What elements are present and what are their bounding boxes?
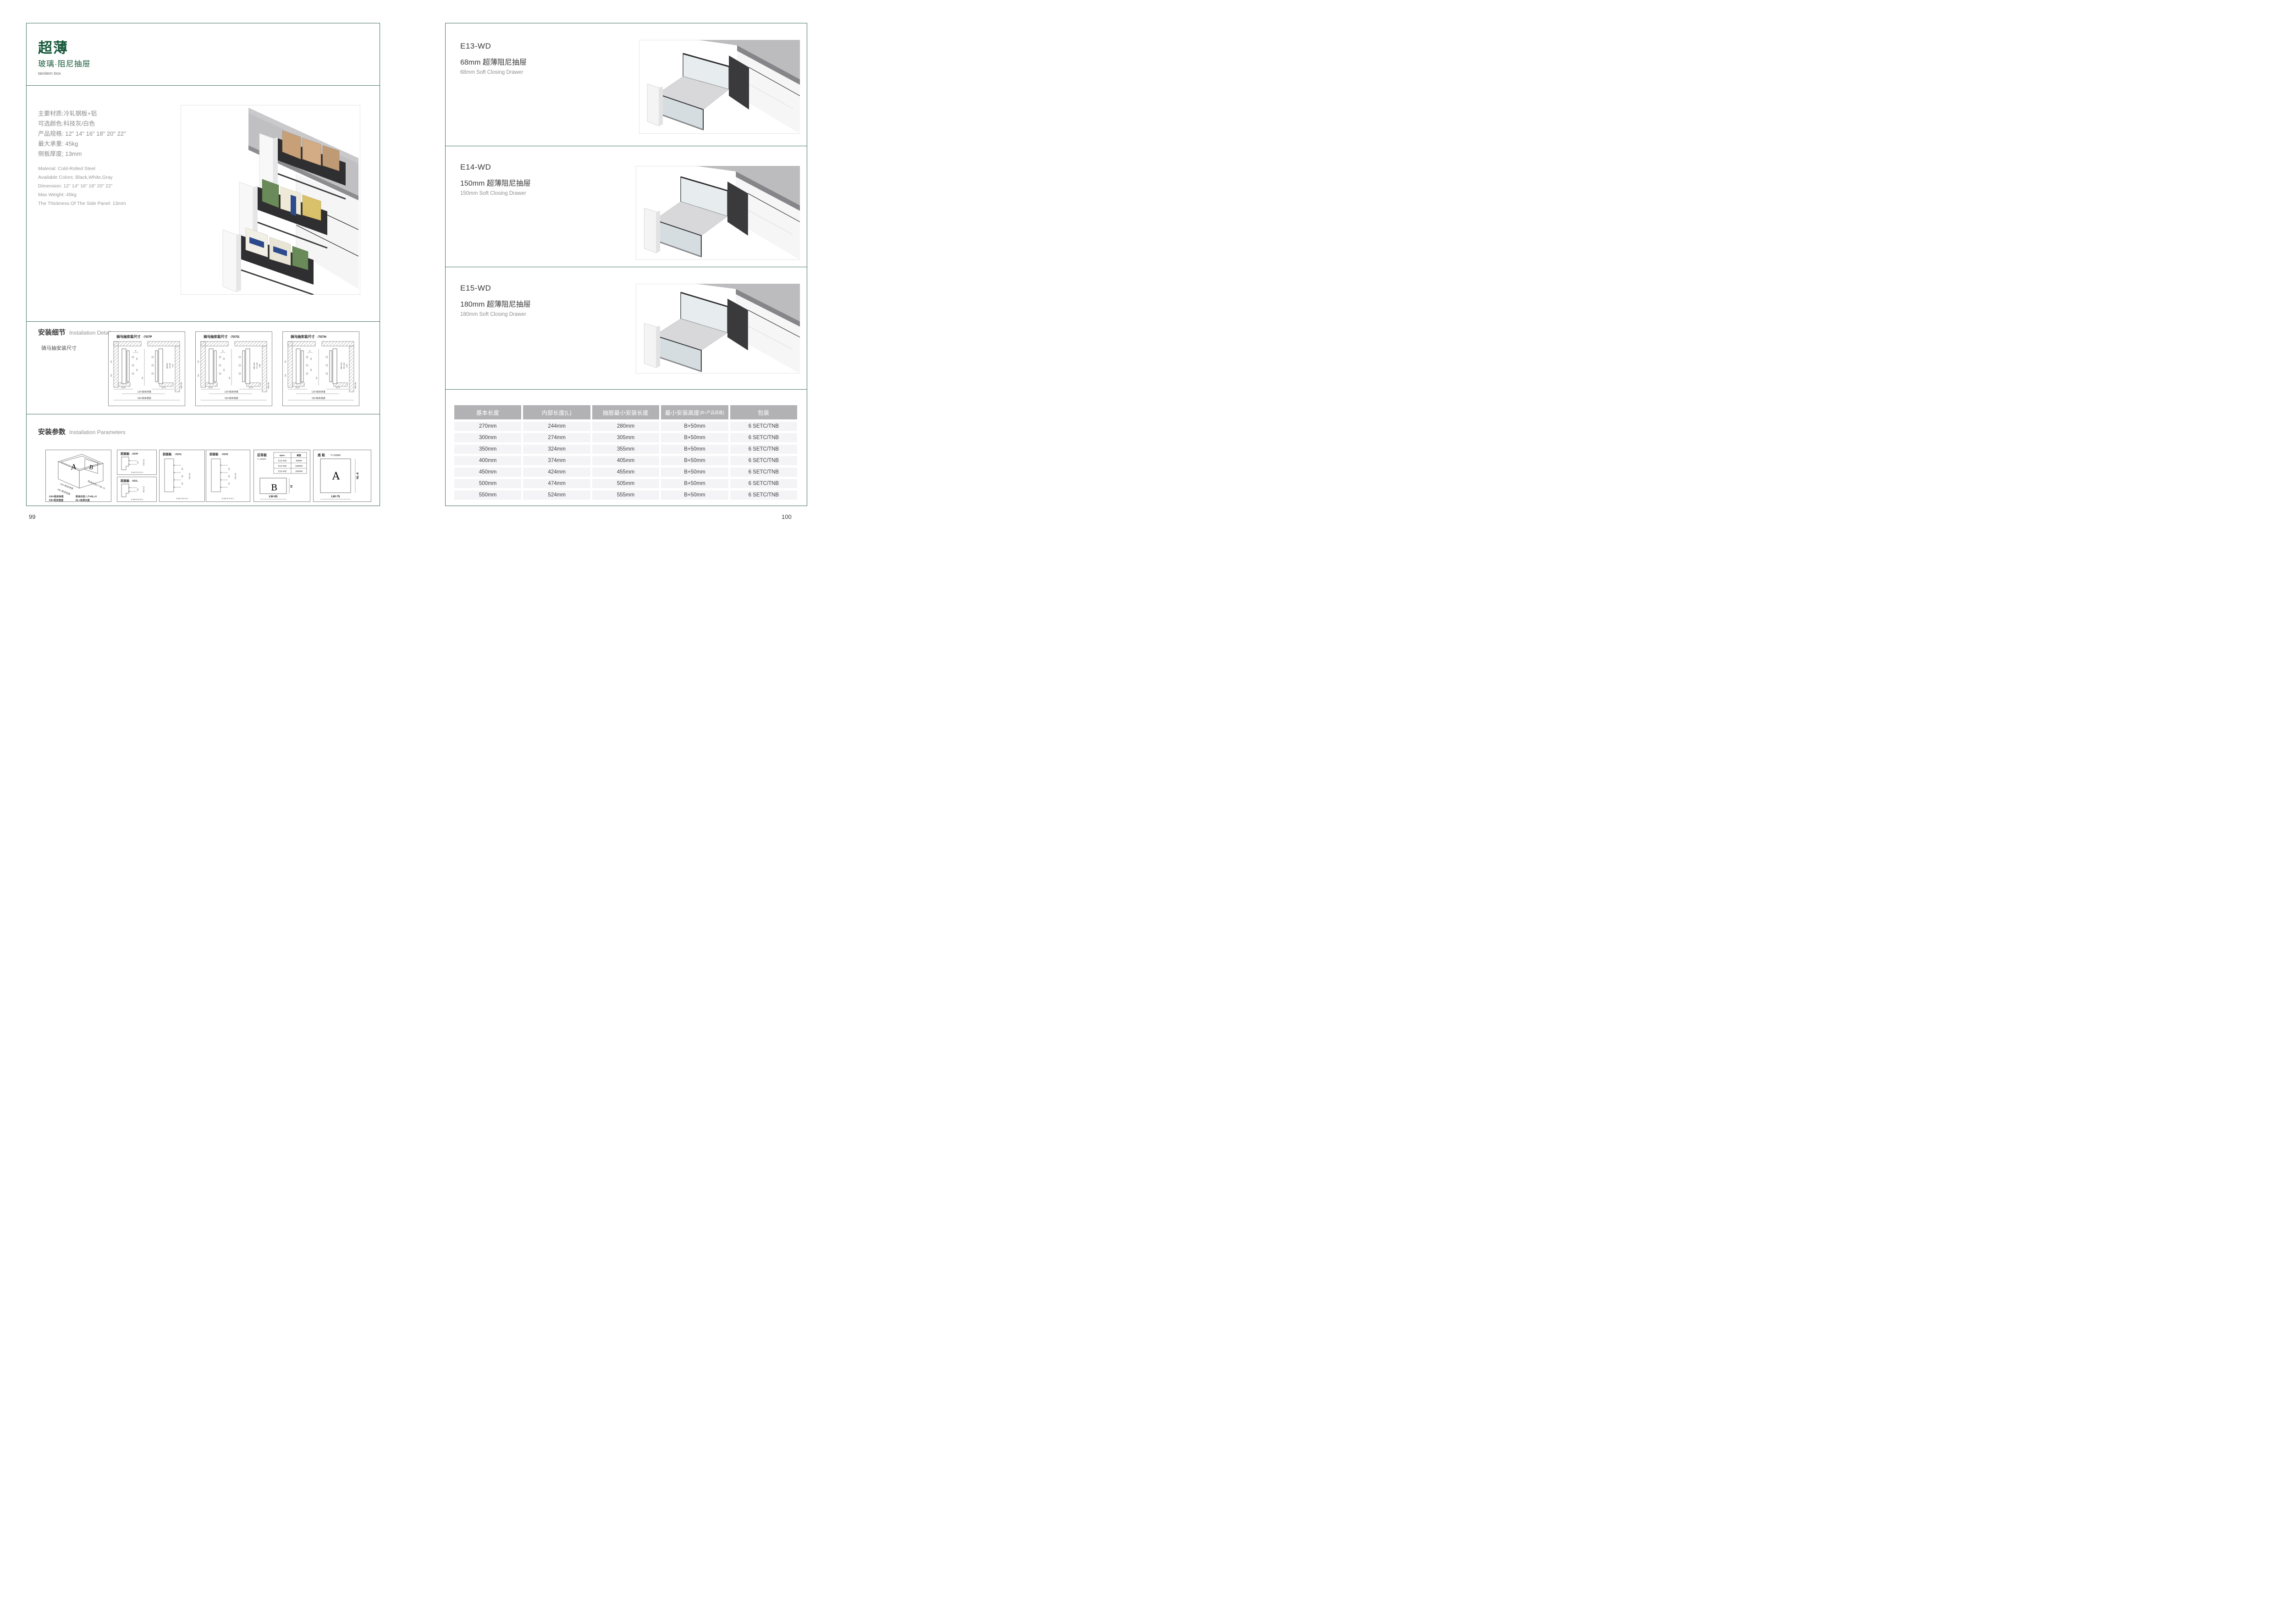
- svg-text:A: A: [332, 471, 340, 482]
- svg-text:32: 32: [137, 461, 139, 464]
- cell-packing: 6 SETC/TNB: [730, 468, 797, 477]
- product-photo-e14: [636, 166, 800, 260]
- table-header-cell: 包装: [730, 405, 797, 419]
- product-code: E15-WD: [460, 284, 531, 293]
- page-title: 超薄: [38, 36, 68, 57]
- bottom-panel-diagram: 底 板 T=16MM A NL-6 LW-75: [313, 450, 371, 502]
- cell-inner-length: 244mm: [523, 422, 590, 431]
- svg-text:16: 16: [228, 377, 231, 380]
- spec-line-cn: 产品规格: 12" 14" 16" 18" 20" 22": [38, 129, 126, 139]
- cell-packing: 6 SETC/TNB: [730, 422, 797, 431]
- table-row: 450mm 424mm 455mm B+50mm 6 SETC/TNB: [454, 468, 797, 477]
- svg-text:骑马抽安装尺寸-707G: 骑马抽安装尺寸-707G: [204, 334, 240, 339]
- svg-text:Min192: Min192: [340, 362, 342, 369]
- svg-text:LW=柜体净宽: LW=柜体净宽: [225, 391, 238, 394]
- svg-text:2-ø2+0.2-0.1: 2-ø2+0.2-0.1: [131, 471, 143, 473]
- spec-line-en: Dimension: 12" 14" 16" 18" 20" 22": [38, 182, 126, 191]
- install-details-subheading: 骑马抽安装尺寸: [41, 344, 77, 352]
- product-photo-main: [181, 105, 360, 295]
- svg-text:9: 9: [222, 350, 224, 352]
- svg-text:225: 225: [346, 364, 348, 368]
- install-detail-panel: 骑马抽安装尺寸-707P: [108, 331, 185, 406]
- svg-text:20: 20: [223, 358, 225, 360]
- cell-basic-length: 300mm: [454, 433, 521, 442]
- cell-min-install-height: B+50mm: [661, 468, 728, 477]
- table-row: 400mm 374mm 405mm B+50mm 6 SETC/TNB: [454, 456, 797, 465]
- svg-text:32: 32: [197, 360, 199, 363]
- install-details-heading: 安装细节Installation Details: [38, 327, 114, 337]
- cell-min-install-length: 555mm: [592, 490, 659, 500]
- svg-text:201.50: 201.50: [343, 363, 345, 369]
- cell-inner-length: 374mm: [523, 456, 590, 465]
- table-header-cell: 抽屉最小安装长度: [592, 405, 659, 419]
- table-header-cell: 基本长度: [454, 405, 521, 419]
- cell-min-install-height: B+50mm: [661, 490, 728, 500]
- table-row: 300mm 274mm 305mm B+50mm 6 SETC/TNB: [454, 433, 797, 442]
- svg-text:32: 32: [181, 482, 183, 485]
- table-header-cell: 最小安装高度(B=产品高度): [661, 405, 728, 419]
- spec-line-en: Max Weight: 45kg: [38, 191, 126, 199]
- svg-text:64: 64: [197, 374, 199, 377]
- cell-inner-length: 274mm: [523, 433, 590, 442]
- svg-text:37.5: 37.5: [162, 386, 166, 389]
- svg-text:LW=柜体净宽: LW=柜体净宽: [312, 391, 325, 394]
- page-subtitle: 玻璃·阻尼抽屉: [38, 57, 91, 69]
- section-divider-2: [446, 267, 807, 267]
- section-divider-3: [446, 389, 807, 390]
- svg-text:32: 32: [223, 369, 225, 371]
- product-name-cn: 68mm 超薄阻尼抽屉: [460, 56, 527, 67]
- svg-text:20: 20: [136, 358, 138, 360]
- cell-inner-length: 524mm: [523, 490, 590, 500]
- svg-text:54: 54: [110, 374, 112, 377]
- svg-text:195: 195: [259, 364, 261, 368]
- cell-packing: 6 SETC/TNB: [730, 490, 797, 500]
- spec-list-cn: 主要材质:冷轧钢板+铝可选颜色:科技灰/白色产品规格: 12" 14" 16" …: [38, 109, 126, 159]
- spec-line-cn: 侧板厚度; 13mm: [38, 149, 126, 159]
- front-panel-707l: 前面板-707L 32 min 54 2-ø2+0.2-0.1: [117, 477, 157, 502]
- section-divider-1: [446, 146, 807, 146]
- page-number-left: 99: [29, 513, 35, 520]
- section-e15: E15-WD 180mm 超薄阻尼抽屉 180mm Soft Closing D…: [460, 284, 531, 317]
- spec-list-en: Material: Cold-Rolled SteelAvailable Col…: [38, 165, 126, 208]
- install-detail-panel: 骑马抽安装尺寸-707G: [195, 331, 272, 406]
- svg-text:113: 113: [171, 364, 174, 368]
- svg-text:min 54: min 54: [188, 473, 191, 479]
- svg-text:Min82: Min82: [166, 363, 168, 369]
- svg-text:KB=柜体宽度: KB=柜体宽度: [138, 397, 151, 400]
- product-photo-e13: [639, 40, 800, 134]
- svg-text:骑马抽安装尺寸-707P: 骑马抽安装尺寸-707P: [116, 334, 152, 339]
- cell-packing: 6 SETC/TNB: [730, 479, 797, 488]
- table-header-cell: 内部长度(L): [523, 405, 590, 419]
- page-tagline: tandem box: [38, 71, 61, 76]
- svg-text:180MM: 180MM: [295, 470, 303, 473]
- svg-text:4-ø2+0.2-0.1: 4-ø2+0.2-0.1: [176, 497, 188, 500]
- svg-text:32: 32: [110, 360, 112, 363]
- product-code: E13-WD: [460, 42, 527, 51]
- table-row: 550mm 524mm 555mm B+50mm 6 SETC/TNB: [454, 490, 797, 500]
- front-panel-707g: 前面板-707G 32 64 32 min 54 4-ø2+0.2-0.1: [159, 450, 205, 502]
- svg-text:32: 32: [137, 488, 139, 491]
- svg-text:32: 32: [136, 369, 138, 371]
- cell-min-install-height: B+50mm: [661, 422, 728, 431]
- cell-packing: 6 SETC/TNB: [730, 456, 797, 465]
- svg-text:64: 64: [181, 475, 183, 478]
- table-header-row: 基本长度 内部长度(L) 抽屉最小安装长度 最小安装高度(B=产品高度) 包装: [454, 405, 797, 419]
- cell-min-install-length: 305mm: [592, 433, 659, 442]
- svg-text:E15-WD: E15-WD: [278, 470, 287, 473]
- svg-text:Min 36: Min 36: [354, 382, 357, 389]
- svg-text:37.5: 37.5: [336, 386, 340, 389]
- svg-text:150MM: 150MM: [295, 465, 303, 468]
- cell-min-install-length: 455mm: [592, 468, 659, 477]
- svg-text:NL-6: NL-6: [356, 472, 359, 479]
- cell-basic-length: 400mm: [454, 456, 521, 465]
- cell-basic-length: 270mm: [454, 422, 521, 431]
- svg-text:Spec.: Spec.: [280, 454, 286, 457]
- section-e13: E13-WD 68mm 超薄阻尼抽屉 68mm Soft Closing Dra…: [460, 42, 527, 75]
- install-detail-panel: 骑马抽安装尺寸-707H: [282, 331, 359, 406]
- catalog-page-right: E13-WD 68mm 超薄阻尼抽屉 68mm Soft Closing Dra…: [445, 23, 807, 506]
- product-name-en: 180mm Soft Closing Drawer: [460, 312, 531, 317]
- svg-text:骑马抽安装尺寸-707H: 骑马抽安装尺寸-707H: [291, 334, 326, 339]
- cell-min-install-height: B+50mm: [661, 479, 728, 488]
- svg-text:KB=柜体宽度: KB=柜体宽度: [312, 397, 325, 400]
- product-photo-e15: [636, 284, 800, 374]
- cell-min-install-length: 505mm: [592, 479, 659, 488]
- product-name-cn: 150mm 超薄阻尼抽屉: [460, 177, 531, 188]
- iso-cabinet-panel: A B 柜体内空LT=NL+3 LW=柜体净宽 KB=柜体宽度 LW=柜体净宽 …: [45, 450, 111, 502]
- svg-text:NL=标准长度: NL=标准长度: [76, 498, 90, 502]
- spec-line-cn: 可选颜色:科技灰/白色: [38, 119, 126, 129]
- svg-text:min 54: min 54: [143, 459, 145, 466]
- svg-text:2-ø2+0.2-0.1: 2-ø2+0.2-0.1: [131, 498, 143, 501]
- svg-text:9: 9: [309, 350, 311, 352]
- install-detail-panels: 骑马抽安装尺寸-707P: [108, 331, 359, 406]
- svg-text:64: 64: [228, 475, 230, 478]
- svg-text:Min 36: Min 36: [267, 382, 270, 389]
- svg-text:4-ø2+0.2-0.1: 4-ø2+0.2-0.1: [222, 497, 234, 500]
- svg-text:T=16MM: T=16MM: [331, 454, 341, 457]
- svg-text:LW-85: LW-85: [269, 495, 277, 498]
- svg-text:68MM: 68MM: [296, 460, 302, 462]
- table-row: 270mm 244mm 280mm B+50mm 6 SETC/TNB: [454, 422, 797, 431]
- svg-text:E13-WD: E13-WD: [278, 460, 287, 462]
- cell-min-install-length: 405mm: [592, 456, 659, 465]
- svg-text:min 54: min 54: [234, 473, 237, 479]
- cell-min-install-height: B+50mm: [661, 433, 728, 442]
- dimensions-table: 基本长度 内部长度(L) 抽屉最小安装长度 最小安装高度(B=产品高度) 包装: [454, 405, 797, 500]
- cell-inner-length: 474mm: [523, 479, 590, 488]
- svg-text:T=16MM: T=16MM: [257, 458, 266, 461]
- svg-text:KB=柜体宽度: KB=柜体宽度: [49, 498, 64, 502]
- spec-line-cn: 主要材质:冷轧钢板+铝: [38, 109, 126, 119]
- svg-text:柜体内空: LT=NL+3: 柜体内空: LT=NL+3: [76, 495, 97, 498]
- cell-packing: 6 SETC/TNB: [730, 445, 797, 454]
- catalog-page-left: 超薄 玻璃·阻尼抽屉 tandem box 主要材质:冷轧钢板+铝可选颜色:科技…: [26, 23, 380, 506]
- svg-text:Min162: Min162: [253, 362, 255, 369]
- section-divider-details: [27, 321, 380, 322]
- svg-text:16.5: 16.5: [121, 386, 126, 389]
- install-params-heading: 安装参数Installation Parameters: [38, 427, 126, 436]
- spec-line-en: The Thickness Of The Side Panel: 13mm: [38, 199, 126, 208]
- svg-text:32: 32: [284, 360, 286, 363]
- svg-text:16: 16: [315, 377, 318, 380]
- table-row: 350mm 324mm 355mm B+50mm 6 SETC/TNB: [454, 445, 797, 454]
- svg-text:LW=柜体净宽: LW=柜体净宽: [138, 391, 151, 394]
- cell-basic-length: 450mm: [454, 468, 521, 477]
- svg-text:Min 36: Min 36: [180, 382, 182, 389]
- cell-basic-length: 550mm: [454, 490, 521, 500]
- front-panel-707p: 前面板-707P 32 min 54 2-ø2+0.2-0.1: [117, 450, 157, 475]
- svg-text:后背板: 后背板: [257, 453, 267, 457]
- svg-text:底 板: 底 板: [318, 453, 325, 457]
- svg-text:16.5: 16.5: [296, 386, 300, 389]
- cell-basic-length: 350mm: [454, 445, 521, 454]
- cell-inner-length: 424mm: [523, 468, 590, 477]
- svg-text:32: 32: [228, 482, 230, 485]
- cell-min-install-height: B+50mm: [661, 456, 728, 465]
- svg-text:KB=柜体宽度: KB=柜体宽度: [225, 397, 238, 400]
- spec-line-en: Material: Cold-Rolled Steel: [38, 165, 126, 173]
- svg-text:LW=柜体净宽: LW=柜体净宽: [49, 495, 64, 498]
- table-body: 270mm 244mm 280mm B+50mm 6 SETC/TNB 300m…: [454, 422, 797, 500]
- cell-min-install-length: 280mm: [592, 422, 659, 431]
- product-name-cn: 180mm 超薄阻尼抽屉: [460, 298, 531, 309]
- product-name-en: 150mm Soft Closing Drawer: [460, 191, 531, 196]
- product-code: E14-WD: [460, 163, 531, 172]
- svg-text:91.50: 91.50: [169, 363, 171, 369]
- front-panel-707h: 前面板-707H 32 64 32 min 54 4-ø2+0.2-0.1: [206, 450, 250, 502]
- svg-text:高度: 高度: [297, 454, 301, 457]
- cell-basic-length: 500mm: [454, 479, 521, 488]
- svg-text:LW-75: LW-75: [331, 495, 340, 498]
- svg-text:16: 16: [141, 377, 143, 380]
- svg-text:16.5: 16.5: [209, 386, 213, 389]
- table-row: 500mm 474mm 505mm B+50mm 6 SETC/TNB: [454, 479, 797, 488]
- svg-text:min 54: min 54: [143, 486, 145, 493]
- svg-text:E14-WD: E14-WD: [278, 465, 287, 468]
- svg-text:32: 32: [228, 468, 230, 470]
- cell-packing: 6 SETC/TNB: [730, 433, 797, 442]
- cell-min-install-height: B+50mm: [661, 445, 728, 454]
- section-divider-params: [27, 414, 380, 414]
- svg-text:H: H: [289, 485, 293, 487]
- svg-text:37.5: 37.5: [249, 386, 253, 389]
- spec-line-cn: 最大承重: 45kg: [38, 139, 126, 149]
- svg-text:32: 32: [181, 468, 183, 470]
- section-e14: E14-WD 150mm 超薄阻尼抽屉 150mm Soft Closing D…: [460, 163, 531, 196]
- header-divider: [27, 85, 380, 86]
- svg-text:64: 64: [284, 374, 286, 377]
- svg-text:20: 20: [310, 358, 312, 360]
- back-panel-diagram: 后背板 T=16MM Spec. 高度 E13-WD 68MM E14-WD 1…: [253, 450, 310, 502]
- cell-inner-length: 324mm: [523, 445, 590, 454]
- product-name-en: 68mm Soft Closing Drawer: [460, 70, 527, 75]
- svg-text:9: 9: [135, 350, 137, 352]
- svg-text:171.50: 171.50: [256, 363, 258, 369]
- svg-text:B: B: [271, 483, 277, 493]
- cell-min-install-length: 355mm: [592, 445, 659, 454]
- page-number-right: 100: [782, 513, 792, 520]
- spec-line-en: Available Colors: Black,White,Gray: [38, 173, 126, 182]
- svg-text:32: 32: [310, 369, 312, 371]
